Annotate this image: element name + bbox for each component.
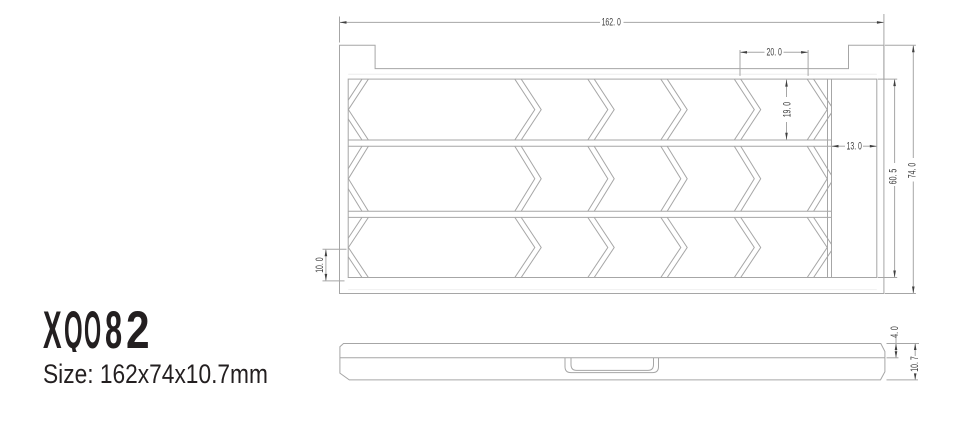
svg-text:74. 0: 74. 0 [906, 163, 918, 178]
svg-text:4. 0: 4. 0 [888, 326, 900, 338]
svg-text:10. 7: 10. 7 [909, 356, 921, 371]
svg-text:162. 0: 162. 0 [602, 16, 621, 28]
svg-text:13. 0: 13. 0 [846, 140, 861, 152]
svg-text:60. 5: 60. 5 [887, 169, 899, 184]
svg-text:19. 0: 19. 0 [781, 102, 793, 117]
svg-text:20. 0: 20. 0 [766, 46, 781, 58]
svg-text:10. 0: 10. 0 [313, 257, 325, 272]
